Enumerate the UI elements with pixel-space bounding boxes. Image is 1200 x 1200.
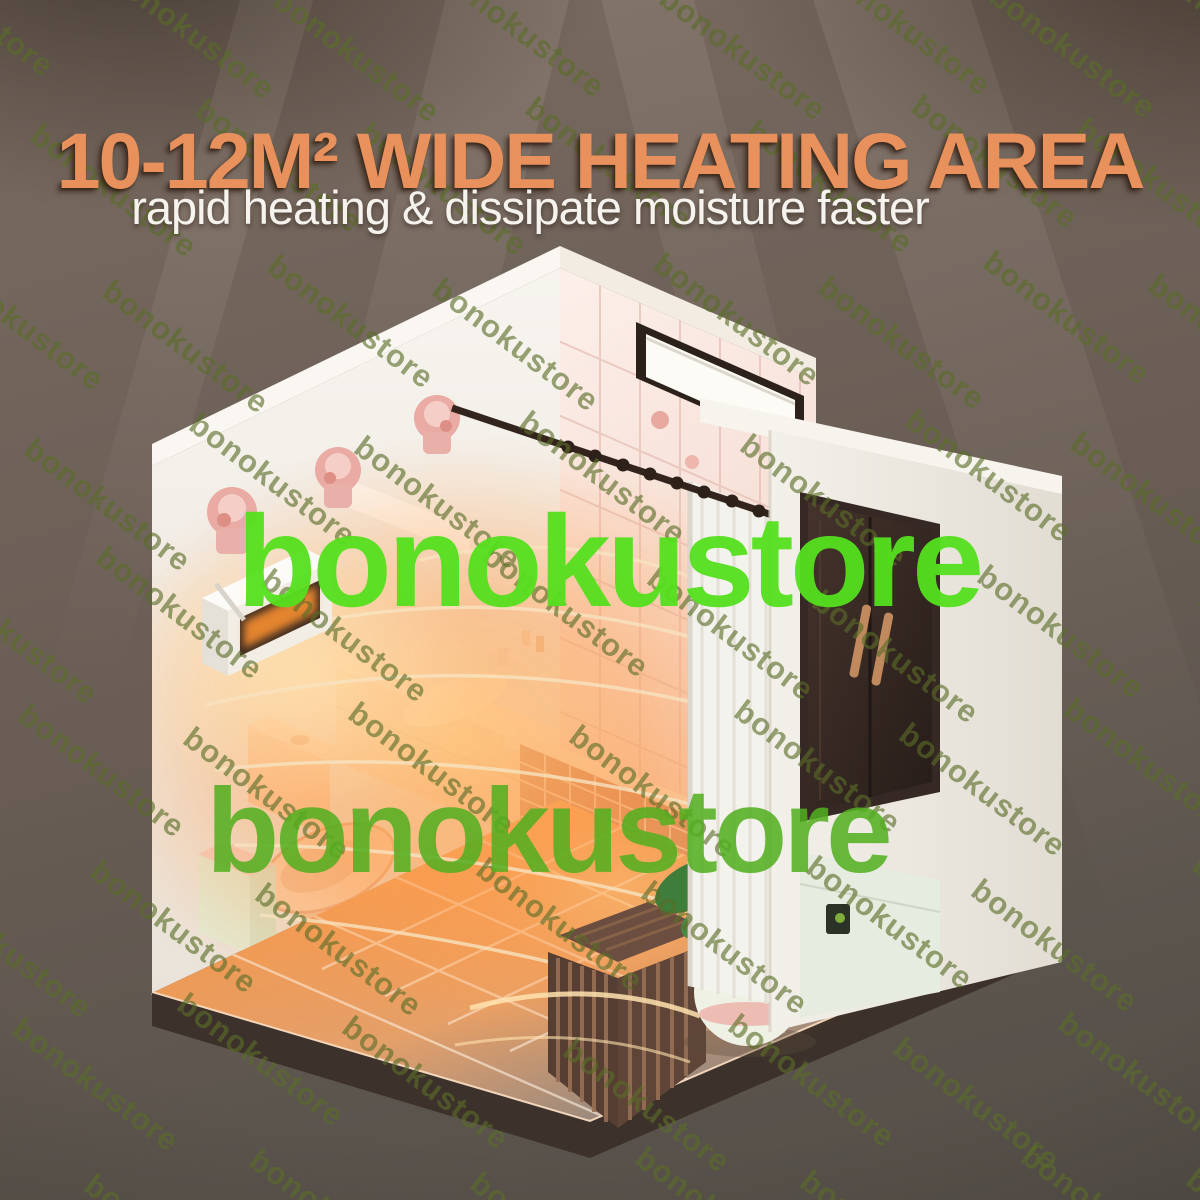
bathroom-cabinet [800, 492, 940, 822]
cabinet-cubby [800, 852, 940, 1018]
page-subtitle: rapid heating & dissipate moisture faste… [131, 180, 929, 235]
product-banner: bonokustorebonokustorebonokustorebonokus… [0, 0, 1200, 1200]
